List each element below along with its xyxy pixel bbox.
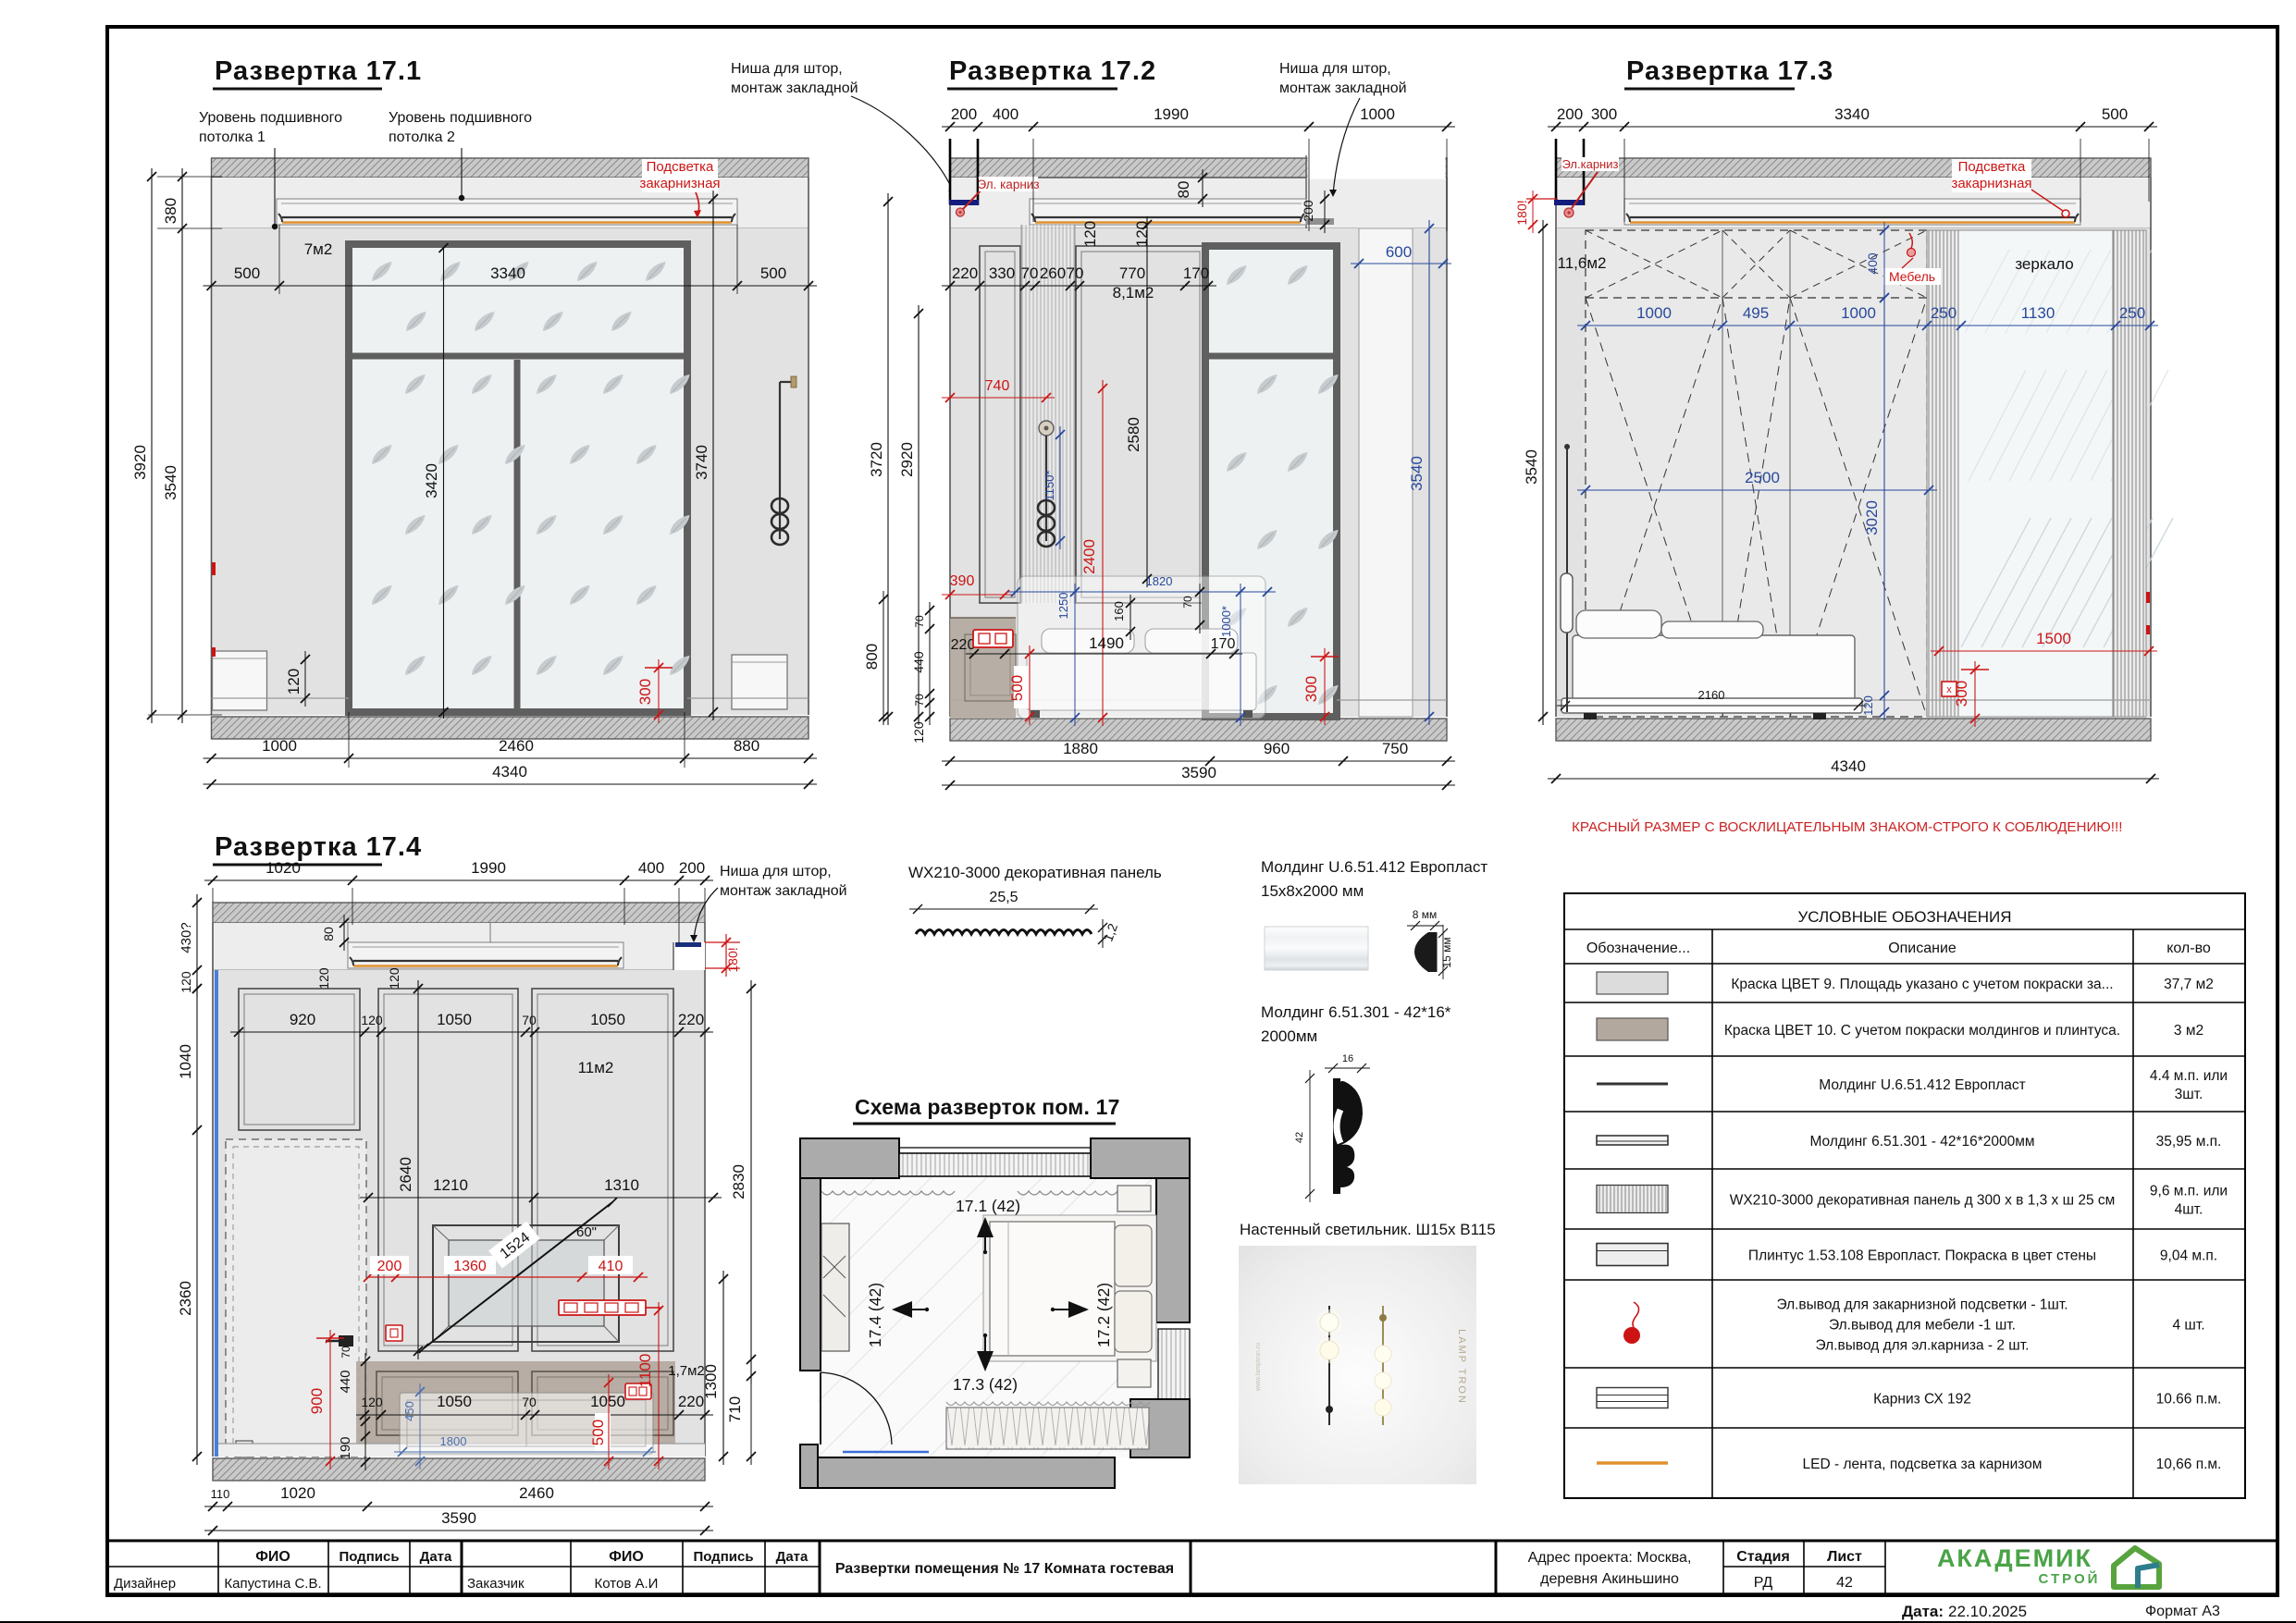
svg-text:1210: 1210 xyxy=(433,1176,468,1194)
svg-text:3590: 3590 xyxy=(441,1509,476,1527)
svg-text:Подпись: Подпись xyxy=(339,1549,399,1565)
svg-text:120: 120 xyxy=(316,967,331,990)
svg-text:17.4 (42): 17.4 (42) xyxy=(866,1283,884,1347)
svg-text:35,95 м.п.: 35,95 м.п. xyxy=(2156,1134,2222,1150)
svg-text:3шт.: 3шт. xyxy=(2175,1087,2203,1102)
svg-text:1820: 1820 xyxy=(1146,574,1173,588)
svg-text:Дата: Дата xyxy=(776,1549,809,1565)
svg-text:Эл.вывод для закарнизной подсв: Эл.вывод для закарнизной подсветки - 1шт… xyxy=(1776,1297,2068,1313)
svg-text:410: 410 xyxy=(599,1259,623,1274)
svg-text:80: 80 xyxy=(1175,181,1192,199)
svg-text:деревня Акиньшино: деревня Акиньшино xyxy=(1540,1571,1679,1587)
svg-text:Краска ЦВЕТ 9. Площадь указано: Краска ЦВЕТ 9. Площадь указано с учетом … xyxy=(1731,977,2113,992)
svg-text:960: 960 xyxy=(1264,740,1290,757)
svg-text:450: 450 xyxy=(402,1401,416,1421)
svg-text:11м2: 11м2 xyxy=(578,1059,614,1076)
svg-text:70: 70 xyxy=(913,694,926,707)
svg-text:3540: 3540 xyxy=(1408,456,1426,491)
svg-text:Молдинг U.6.51.412 Европласт: Молдинг U.6.51.412 Европласт xyxy=(1819,1077,2026,1093)
svg-text:17.2 (42): 17.2 (42) xyxy=(1094,1283,1113,1347)
svg-text:120: 120 xyxy=(361,1395,383,1409)
svg-text:Эл. карниз: Эл. карниз xyxy=(977,178,1039,191)
svg-text:Эл.карниз: Эл.карниз xyxy=(1562,157,1619,171)
svg-text:АКАДЕМИК: АКАДЕМИК xyxy=(1937,1544,2092,1572)
svg-text:Молдинг U.6.51.412 Европласт: Молдинг U.6.51.412 Европласт xyxy=(1261,858,1487,876)
svg-text:1000*: 1000* xyxy=(1219,606,1233,637)
svg-text:1300: 1300 xyxy=(702,1364,720,1399)
svg-text:400: 400 xyxy=(993,105,1018,123)
svg-text:2000мм: 2000мм xyxy=(1261,1027,1317,1045)
svg-text:70: 70 xyxy=(913,615,926,628)
svg-text:3 м2: 3 м2 xyxy=(2174,1023,2203,1039)
svg-text:Мебель: Мебель xyxy=(1889,269,1935,284)
svg-text:СТРОЙ: СТРОЙ xyxy=(2039,1570,2101,1587)
svg-text:750: 750 xyxy=(1382,740,1408,757)
svg-text:РД: РД xyxy=(1754,1575,1773,1591)
svg-text:Развертка 17.1: Развертка 17.1 xyxy=(215,56,422,86)
svg-text:закарнизная: закарнизная xyxy=(1951,176,2031,191)
svg-text:Адрес проекта: Москва,: Адрес проекта: Москва, xyxy=(1528,1550,1692,1566)
svg-text:200: 200 xyxy=(377,1259,402,1274)
svg-text:330: 330 xyxy=(989,264,1015,282)
svg-text:15 мм: 15 мм xyxy=(1440,937,1453,967)
svg-text:3540: 3540 xyxy=(162,465,179,500)
svg-text:70: 70 xyxy=(522,1013,537,1027)
svg-text:2830: 2830 xyxy=(730,1164,747,1199)
svg-text:1020: 1020 xyxy=(280,1484,315,1502)
svg-text:Ниша для штор,: Ниша для штор, xyxy=(720,864,832,879)
svg-text:70: 70 xyxy=(339,1346,352,1359)
svg-text:1020: 1020 xyxy=(265,859,301,877)
svg-text:Развертки помещения № 17 Комна: Развертки помещения № 17 Комната гостева… xyxy=(835,1561,1174,1577)
svg-text:80: 80 xyxy=(321,927,336,941)
svg-text:4340: 4340 xyxy=(1831,757,1866,775)
svg-text:Лист: Лист xyxy=(1827,1549,1862,1565)
svg-text:Уровень подшивного: Уровень подшивного xyxy=(389,110,532,126)
svg-text:2400: 2400 xyxy=(1080,539,1098,574)
svg-text:250: 250 xyxy=(2119,304,2145,322)
svg-text:1990: 1990 xyxy=(471,859,506,877)
svg-text:1360: 1360 xyxy=(453,1259,487,1274)
svg-text:закарнизная: закарнизная xyxy=(639,176,720,191)
svg-text:70: 70 xyxy=(1067,264,1084,282)
svg-text:3340: 3340 xyxy=(490,264,525,282)
svg-text:4 шт.: 4 шт. xyxy=(2172,1318,2204,1334)
svg-text:УСЛОВНЫЕ ОБОЗНАЧЕНИЯ: УСЛОВНЫЕ ОБОЗНАЧЕНИЯ xyxy=(1797,908,2011,926)
svg-text:4340: 4340 xyxy=(492,763,527,781)
svg-text:1050: 1050 xyxy=(437,1011,472,1028)
svg-text:Подпись: Подпись xyxy=(693,1549,753,1565)
svg-text:3920: 3920 xyxy=(131,445,149,480)
svg-text:500: 500 xyxy=(589,1420,607,1445)
svg-text:22.10.2025: 22.10.2025 xyxy=(1948,1603,2027,1620)
svg-text:260: 260 xyxy=(1040,264,1066,282)
svg-text:170: 170 xyxy=(1183,264,1209,282)
svg-text:8,1м2: 8,1м2 xyxy=(1113,284,1154,301)
svg-text:200: 200 xyxy=(1557,105,1583,123)
svg-text:потолка 1: потолка 1 xyxy=(199,129,265,145)
svg-text:монтаж закладной: монтаж закладной xyxy=(731,80,858,96)
svg-text:1100: 1100 xyxy=(636,1354,654,1388)
svg-text:250: 250 xyxy=(1931,304,1957,322)
svg-text:440: 440 xyxy=(911,651,926,673)
svg-text:1050: 1050 xyxy=(437,1393,472,1410)
svg-text:Настенный светильник. Ш15х В11: Настенный светильник. Ш15х В115 xyxy=(1240,1221,1496,1238)
svg-text:500: 500 xyxy=(234,264,260,282)
svg-text:440: 440 xyxy=(338,1370,353,1393)
svg-text:Подсветка: Подсветка xyxy=(1958,159,2026,175)
svg-text:Описание: Описание xyxy=(1888,941,1957,956)
svg-text:x: x xyxy=(1946,684,1952,695)
svg-text:220: 220 xyxy=(678,1011,704,1028)
svg-text:8 мм: 8 мм xyxy=(1413,908,1438,921)
svg-text:300: 300 xyxy=(1302,676,1320,702)
svg-text:400: 400 xyxy=(1865,252,1880,275)
svg-text:120: 120 xyxy=(1081,221,1099,247)
svg-text:740: 740 xyxy=(985,378,1010,394)
svg-text:200: 200 xyxy=(1301,200,1315,222)
svg-text:WX210-3000 декоративная панель: WX210-3000 декоративная панель д 300 х в… xyxy=(1730,1193,2116,1209)
svg-text:3340: 3340 xyxy=(1834,105,1870,123)
svg-text:200: 200 xyxy=(951,105,977,123)
svg-text:42: 42 xyxy=(1836,1575,1853,1591)
svg-text:500: 500 xyxy=(760,264,786,282)
svg-text:9,6 м.п. или: 9,6 м.п. или xyxy=(2150,1184,2228,1199)
svg-text:Уровень подшивного: Уровень подшивного xyxy=(199,110,342,126)
svg-text:2160: 2160 xyxy=(1698,688,1725,702)
svg-text:11,6м2: 11,6м2 xyxy=(1558,254,1607,272)
svg-text:120: 120 xyxy=(387,967,401,990)
svg-text:1000: 1000 xyxy=(262,737,297,755)
svg-text:3020: 3020 xyxy=(1863,500,1881,535)
svg-text:3590: 3590 xyxy=(1181,764,1216,781)
svg-text:110: 110 xyxy=(211,1487,230,1501)
svg-text:зеркало: зеркало xyxy=(2015,255,2073,273)
svg-text:Развертка 17.3: Развертка 17.3 xyxy=(1626,56,1833,86)
svg-text:www.lamptron.ru: www.lamptron.ru xyxy=(1255,1343,1262,1392)
svg-text:1000: 1000 xyxy=(1360,105,1395,123)
svg-text:42: 42 xyxy=(1294,1132,1305,1143)
svg-text:500: 500 xyxy=(1008,675,1026,701)
svg-text:2460: 2460 xyxy=(499,737,534,755)
svg-text:16: 16 xyxy=(1342,1053,1353,1064)
svg-text:2500: 2500 xyxy=(1745,469,1780,486)
svg-text:монтаж закладной: монтаж закладной xyxy=(1279,80,1407,96)
svg-text:4шт.: 4шт. xyxy=(2175,1202,2203,1218)
svg-text:1250: 1250 xyxy=(1056,593,1070,620)
svg-text:200: 200 xyxy=(679,859,705,877)
svg-text:Эл.вывод для эл.карниза - 2 шт: Эл.вывод для эл.карниза - 2 шт. xyxy=(1816,1338,2030,1354)
svg-text:600: 600 xyxy=(1386,243,1412,261)
svg-text:3420: 3420 xyxy=(423,463,440,498)
svg-text:25,5: 25,5 xyxy=(989,890,1018,905)
svg-text:880: 880 xyxy=(734,737,759,755)
svg-text:220: 220 xyxy=(678,1393,704,1410)
svg-text:Котов А.И: Котов А.И xyxy=(595,1576,659,1592)
svg-text:380: 380 xyxy=(162,198,179,224)
svg-text:710: 710 xyxy=(726,1396,744,1422)
svg-text:3740: 3740 xyxy=(693,445,710,480)
svg-text:1,7м2: 1,7м2 xyxy=(668,1363,705,1379)
svg-text:500: 500 xyxy=(2102,105,2128,123)
svg-text:190: 190 xyxy=(338,1436,353,1459)
svg-text:WX210-3000 декоративная панель: WX210-3000 декоративная панель xyxy=(908,864,1162,881)
svg-text:Эл.вывод для мебели -1 шт.: Эл.вывод для мебели -1 шт. xyxy=(1829,1318,2016,1334)
svg-text:300: 300 xyxy=(636,679,654,705)
svg-text:Дизайнер: Дизайнер xyxy=(114,1576,176,1592)
svg-text:Формат А3: Формат А3 xyxy=(2145,1604,2220,1619)
svg-text:2920: 2920 xyxy=(898,442,916,477)
svg-text:Карниз СХ 192: Карниз СХ 192 xyxy=(1873,1392,1971,1408)
svg-text:4.4 м.п. или: 4.4 м.п. или xyxy=(2150,1068,2228,1084)
svg-text:15х8х2000 мм: 15х8х2000 мм xyxy=(1261,882,1364,900)
svg-text:2460: 2460 xyxy=(519,1484,554,1502)
svg-text:495: 495 xyxy=(1743,304,1769,322)
svg-text:Молдинг 6.51.301 - 42*16*2000м: Молдинг 6.51.301 - 42*16*2000мм xyxy=(1809,1134,2034,1150)
svg-text:17.1 (42): 17.1 (42) xyxy=(956,1197,1020,1215)
svg-text:1000: 1000 xyxy=(1636,304,1672,322)
svg-text:220: 220 xyxy=(951,637,976,653)
svg-text:Молдинг 6.51.301 - 42*16*: Молдинг 6.51.301 - 42*16* xyxy=(1261,1003,1451,1021)
svg-text:1040: 1040 xyxy=(177,1044,194,1079)
svg-text:1880: 1880 xyxy=(1063,740,1098,757)
svg-text:монтаж закладной: монтаж закладной xyxy=(720,883,847,899)
svg-text:Краска ЦВЕТ 10. С учетом покра: Краска ЦВЕТ 10. С учетом покраски молдин… xyxy=(1724,1023,2120,1039)
svg-text:10,66 п.м.: 10,66 п.м. xyxy=(2156,1457,2222,1472)
svg-text:3540: 3540 xyxy=(1523,449,1540,485)
svg-text:70: 70 xyxy=(1021,264,1039,282)
svg-text:9,04 м.п.: 9,04 м.п. xyxy=(2160,1248,2217,1264)
svg-text:Обозначение...: Обозначение... xyxy=(1586,941,1690,956)
svg-text:1050: 1050 xyxy=(590,1393,625,1410)
svg-text:120: 120 xyxy=(179,971,193,993)
svg-text:LAMP TRON: LAMP TRON xyxy=(1456,1329,1467,1405)
svg-text:Капустина С.В.: Капустина С.В. xyxy=(224,1576,321,1592)
svg-text:17.3 (42): 17.3 (42) xyxy=(953,1375,1018,1394)
svg-text:120: 120 xyxy=(285,669,302,695)
svg-text:ФИО: ФИО xyxy=(609,1549,644,1565)
svg-text:Развертка 17.4: Развертка 17.4 xyxy=(215,832,422,862)
svg-text:160: 160 xyxy=(1112,601,1126,621)
svg-text:10.66 п.м.: 10.66 п.м. xyxy=(2156,1392,2222,1408)
svg-text:120: 120 xyxy=(911,721,926,744)
svg-text:3720: 3720 xyxy=(868,442,885,477)
svg-text:1500: 1500 xyxy=(2036,630,2071,647)
svg-text:2360: 2360 xyxy=(177,1281,194,1316)
svg-text:Подсветка: Подсветка xyxy=(647,159,714,175)
svg-text:770: 770 xyxy=(1119,264,1145,282)
svg-text:800: 800 xyxy=(863,644,881,670)
svg-text:120: 120 xyxy=(361,1013,383,1027)
svg-text:900: 900 xyxy=(308,1388,326,1414)
svg-text:Схема разверток пом. 17: Схема разверток пом. 17 xyxy=(855,1095,1120,1119)
svg-text:70: 70 xyxy=(1181,596,1194,609)
svg-text:180!: 180! xyxy=(1514,200,1529,225)
svg-text:кол-во: кол-во xyxy=(2166,941,2211,956)
svg-text:1050: 1050 xyxy=(590,1011,625,1028)
svg-text:Дата: Дата xyxy=(420,1549,452,1565)
svg-text:Заказчик: Заказчик xyxy=(467,1576,525,1592)
svg-text:потолка 2: потолка 2 xyxy=(389,129,455,145)
svg-text:1310: 1310 xyxy=(604,1176,639,1194)
svg-text:ФИО: ФИО xyxy=(255,1549,290,1565)
svg-text:37,7 м2: 37,7 м2 xyxy=(2164,977,2214,992)
svg-text:1490: 1490 xyxy=(1089,634,1124,652)
svg-text:Стадия: Стадия xyxy=(1736,1549,1790,1565)
svg-text:1800: 1800 xyxy=(440,1434,467,1448)
svg-text:300: 300 xyxy=(1591,105,1617,123)
svg-text:Развертка 17.2: Развертка 17.2 xyxy=(949,56,1156,86)
svg-text:КРАСНЫЙ РАЗМЕР С ВОСКЛИЦАТЕЛЬН: КРАСНЫЙ РАЗМЕР С ВОСКЛИЦАТЕЛЬНЫМ ЗНАКОМ-… xyxy=(1572,818,2122,835)
svg-text:LED - лента, подсветка за карн: LED - лента, подсветка за карнизом xyxy=(1803,1457,2043,1472)
svg-text:1150*: 1150* xyxy=(1043,470,1056,500)
svg-text:1990: 1990 xyxy=(1154,105,1189,123)
svg-text:920: 920 xyxy=(290,1011,315,1028)
svg-text:Дата:: Дата: xyxy=(1902,1603,1944,1620)
svg-text:70: 70 xyxy=(522,1395,537,1409)
svg-text:390: 390 xyxy=(950,573,975,589)
svg-text:Ниша для штор,: Ниша для штор, xyxy=(1279,61,1391,77)
svg-text:170: 170 xyxy=(1211,636,1236,652)
svg-text:2640: 2640 xyxy=(397,1157,414,1192)
svg-text:430?: 430? xyxy=(179,922,194,953)
svg-text:120: 120 xyxy=(1861,695,1875,716)
svg-text:220: 220 xyxy=(952,264,978,282)
svg-text:400: 400 xyxy=(638,859,664,877)
svg-text:7м2: 7м2 xyxy=(304,240,333,258)
svg-text:Ниша для штор,: Ниша для штор, xyxy=(731,61,843,77)
svg-text:1000: 1000 xyxy=(1841,304,1876,322)
svg-text:1130: 1130 xyxy=(2021,304,2055,322)
svg-text:2580: 2580 xyxy=(1125,417,1142,452)
svg-text:Плинтус 1.53.108 Европласт. По: Плинтус 1.53.108 Европласт. Покраска в ц… xyxy=(1748,1248,2096,1264)
